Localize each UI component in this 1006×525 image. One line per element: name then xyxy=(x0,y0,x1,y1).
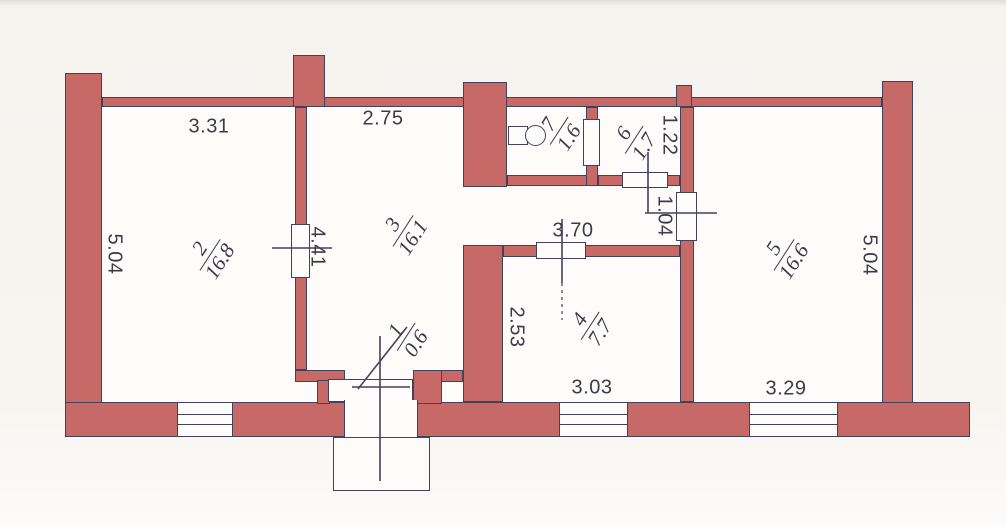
dim-hall-width: 3.70 xyxy=(553,220,594,243)
floor-plan: 3.31 2.75 3.70 3.03 3.29 5.04 4.41 2.53 … xyxy=(0,0,1006,525)
dim-room5-right: 5.04 xyxy=(858,235,881,276)
dim-door23: 4.41 xyxy=(306,227,329,268)
dim-room4-bottom: 3.03 xyxy=(572,377,613,400)
dim-room6-width: 1.22 xyxy=(658,115,681,156)
dimension-lines xyxy=(0,0,1006,525)
dim-room5-bottom: 3.29 xyxy=(766,378,807,401)
dim-room2-top: 3.31 xyxy=(189,116,230,139)
dim-room4-left: 2.53 xyxy=(505,307,528,348)
dim-door-room5: 1.04 xyxy=(653,196,676,237)
dim-room3-top: 2.75 xyxy=(363,108,404,131)
dim-room2-left: 5.04 xyxy=(103,234,126,275)
